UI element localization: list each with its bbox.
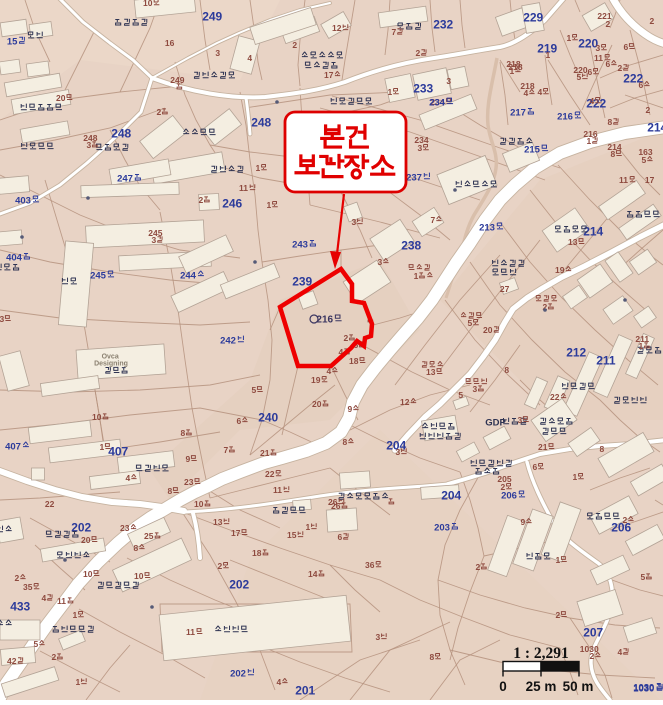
svg-text:5: 5 xyxy=(641,572,646,582)
svg-text:1: 1 xyxy=(267,200,272,210)
svg-text:2: 2 xyxy=(556,610,561,620)
svg-text:2: 2 xyxy=(157,107,162,117)
svg-text:25 m: 25 m xyxy=(526,679,557,694)
svg-text:3: 3 xyxy=(376,632,381,642)
svg-text:9: 9 xyxy=(186,454,191,464)
svg-text:217: 217 xyxy=(510,107,526,118)
svg-text:1: 1 xyxy=(546,50,551,60)
svg-text:4: 4 xyxy=(247,53,252,63)
svg-text:213: 213 xyxy=(479,222,495,233)
svg-text:3: 3 xyxy=(215,48,220,58)
svg-text:2: 2 xyxy=(416,48,421,58)
svg-text:8: 8 xyxy=(168,486,173,496)
svg-text:1: 1 xyxy=(100,442,105,452)
svg-text:3: 3 xyxy=(378,257,383,267)
svg-text:234: 234 xyxy=(429,97,446,108)
svg-text:9: 9 xyxy=(348,404,353,414)
svg-text:2: 2 xyxy=(199,195,204,205)
svg-text:7: 7 xyxy=(431,215,436,225)
svg-text:4: 4 xyxy=(618,647,623,657)
svg-text:5: 5 xyxy=(252,385,257,395)
svg-text:10: 10 xyxy=(92,412,102,422)
svg-text:5: 5 xyxy=(642,155,647,165)
svg-text:1: 1 xyxy=(76,677,81,687)
svg-text:3: 3 xyxy=(473,384,478,394)
svg-text:36: 36 xyxy=(365,560,375,570)
svg-text:17: 17 xyxy=(231,528,241,538)
svg-text:2: 2 xyxy=(15,573,20,583)
svg-text:6: 6 xyxy=(606,59,611,69)
svg-text:8: 8 xyxy=(611,149,616,159)
svg-text:20: 20 xyxy=(81,535,91,545)
svg-text:10: 10 xyxy=(194,499,204,509)
svg-text:3: 3 xyxy=(352,217,357,227)
svg-text:3: 3 xyxy=(446,76,451,86)
svg-text:6: 6 xyxy=(533,462,538,472)
svg-text:3: 3 xyxy=(0,314,5,324)
svg-text:35: 35 xyxy=(23,582,33,592)
svg-text:13: 13 xyxy=(568,237,578,247)
svg-text:2: 2 xyxy=(623,515,628,525)
svg-text:203: 203 xyxy=(434,522,450,533)
svg-text:206: 206 xyxy=(611,520,631,534)
svg-text:10: 10 xyxy=(134,571,144,581)
svg-text:212: 212 xyxy=(566,345,586,359)
svg-text:8: 8 xyxy=(608,117,613,127)
svg-text:2: 2 xyxy=(590,651,595,661)
svg-text:2: 2 xyxy=(52,652,57,662)
svg-text:4: 4 xyxy=(126,473,131,483)
svg-text:248: 248 xyxy=(251,115,271,129)
svg-text:2: 2 xyxy=(292,40,297,50)
svg-text:3: 3 xyxy=(87,140,92,150)
svg-text:233: 233 xyxy=(413,81,433,95)
svg-text:247: 247 xyxy=(117,173,133,184)
svg-text:7: 7 xyxy=(392,27,397,37)
svg-text:5: 5 xyxy=(468,318,473,328)
svg-text:1: 1 xyxy=(556,555,561,565)
svg-text:246: 246 xyxy=(222,196,242,210)
svg-text:1: 1 xyxy=(73,610,78,620)
svg-text:243: 243 xyxy=(292,239,308,250)
svg-text:Ovca: Ovca xyxy=(102,354,119,361)
svg-text:20: 20 xyxy=(483,325,493,335)
svg-text:2: 2 xyxy=(606,19,611,29)
svg-text:13: 13 xyxy=(426,367,436,377)
svg-text:4: 4 xyxy=(277,677,282,687)
svg-text:11: 11 xyxy=(619,175,628,185)
svg-text:2: 2 xyxy=(618,63,623,73)
svg-text:23: 23 xyxy=(184,477,194,487)
svg-text:6: 6 xyxy=(338,532,343,542)
svg-text:6: 6 xyxy=(639,80,644,90)
svg-text:22: 22 xyxy=(265,469,275,479)
svg-text:7: 7 xyxy=(224,445,229,455)
svg-text:50 m: 50 m xyxy=(563,679,594,694)
svg-text:18: 18 xyxy=(349,356,359,366)
svg-text:8: 8 xyxy=(134,543,139,553)
svg-text:207: 207 xyxy=(583,625,603,639)
svg-text:3: 3 xyxy=(396,447,401,457)
svg-text:4: 4 xyxy=(524,88,529,98)
svg-text:1: 1 xyxy=(306,522,311,532)
svg-text:21: 21 xyxy=(260,448,270,458)
svg-text:4: 4 xyxy=(42,593,47,603)
svg-text:215: 215 xyxy=(524,144,541,155)
svg-text:17: 17 xyxy=(324,70,334,80)
svg-text:237: 237 xyxy=(406,172,422,183)
svg-text:3: 3 xyxy=(518,415,523,425)
svg-text:8: 8 xyxy=(430,652,435,662)
svg-text:229: 229 xyxy=(523,10,543,24)
svg-text:8: 8 xyxy=(600,444,605,454)
svg-text:2: 2 xyxy=(646,105,651,115)
svg-text:1030: 1030 xyxy=(633,682,654,693)
svg-text:202: 202 xyxy=(230,668,246,679)
svg-text:3: 3 xyxy=(152,235,157,245)
svg-text:249: 249 xyxy=(202,9,222,23)
svg-text:42: 42 xyxy=(7,656,17,666)
svg-text:1: 1 xyxy=(587,136,592,146)
svg-text:1: 1 xyxy=(573,472,578,482)
svg-text:407: 407 xyxy=(5,441,21,452)
svg-text:22: 22 xyxy=(45,499,55,509)
svg-text:204: 204 xyxy=(441,488,461,502)
svg-text:2: 2 xyxy=(476,562,481,572)
svg-text:Designing: Designing xyxy=(94,361,128,368)
svg-text:214: 214 xyxy=(647,120,663,134)
svg-text:26: 26 xyxy=(331,501,341,511)
svg-text:240: 240 xyxy=(258,410,278,424)
svg-text:5: 5 xyxy=(577,72,582,82)
svg-text:216: 216 xyxy=(557,111,573,122)
svg-text:13: 13 xyxy=(213,517,223,527)
svg-text:238: 238 xyxy=(401,238,421,252)
svg-text:22: 22 xyxy=(550,392,560,402)
svg-text:1: 1 xyxy=(567,33,572,43)
svg-text:11: 11 xyxy=(239,183,248,193)
svg-text:21: 21 xyxy=(538,442,548,452)
svg-text:19: 19 xyxy=(311,375,321,385)
svg-text:25: 25 xyxy=(144,531,154,541)
svg-text:8: 8 xyxy=(343,437,348,447)
svg-text:17: 17 xyxy=(645,175,655,185)
svg-text:1: 1 xyxy=(414,271,419,281)
svg-text:20: 20 xyxy=(56,93,66,103)
svg-text:19: 19 xyxy=(555,265,565,275)
svg-text:11: 11 xyxy=(186,627,195,637)
svg-text:3: 3 xyxy=(596,43,601,53)
svg-text:14: 14 xyxy=(308,569,318,579)
svg-text:23: 23 xyxy=(120,523,130,533)
svg-text:201: 201 xyxy=(295,683,315,697)
svg-text:216: 216 xyxy=(316,315,333,326)
svg-text:8: 8 xyxy=(181,428,186,438)
svg-text:6: 6 xyxy=(237,416,242,426)
svg-text:2: 2 xyxy=(218,561,223,571)
svg-text:12: 12 xyxy=(332,23,342,33)
svg-text:10: 10 xyxy=(143,0,153,8)
svg-text:4: 4 xyxy=(538,87,543,97)
svg-text:232: 232 xyxy=(433,17,453,31)
svg-text:248: 248 xyxy=(111,126,131,140)
svg-text:0: 0 xyxy=(499,679,507,694)
svg-text:6: 6 xyxy=(624,42,629,52)
svg-text:433: 433 xyxy=(10,599,30,613)
svg-text:5: 5 xyxy=(34,639,39,649)
svg-text:8: 8 xyxy=(504,365,509,375)
svg-text:2: 2 xyxy=(344,333,349,343)
svg-text:1: 1 xyxy=(639,341,644,351)
svg-text:4: 4 xyxy=(590,96,595,106)
svg-text:5: 5 xyxy=(458,390,463,400)
svg-text:15: 15 xyxy=(287,530,297,540)
svg-text:9: 9 xyxy=(521,517,526,527)
svg-text:3: 3 xyxy=(418,143,423,153)
svg-text:403: 403 xyxy=(15,195,31,206)
svg-text:242: 242 xyxy=(220,335,236,346)
svg-text:20: 20 xyxy=(312,399,322,409)
svg-text:245: 245 xyxy=(90,270,107,281)
svg-text:10: 10 xyxy=(83,569,93,579)
svg-text:11: 11 xyxy=(273,485,282,495)
svg-text:211: 211 xyxy=(596,353,616,367)
svg-text:404: 404 xyxy=(6,252,23,263)
svg-text:202: 202 xyxy=(229,577,249,591)
svg-text:1 : 2,291: 1 : 2,291 xyxy=(513,645,569,662)
svg-text:16: 16 xyxy=(165,38,175,48)
svg-text:6: 6 xyxy=(588,67,593,77)
svg-text:27: 27 xyxy=(500,284,510,294)
svg-text:2: 2 xyxy=(650,16,655,26)
svg-text:1: 1 xyxy=(256,163,261,173)
svg-text:244: 244 xyxy=(180,270,197,281)
svg-text:1: 1 xyxy=(388,87,393,97)
svg-text:12: 12 xyxy=(400,397,410,407)
svg-text:218: 218 xyxy=(508,62,522,72)
svg-text:407: 407 xyxy=(108,444,128,458)
svg-text:15: 15 xyxy=(7,36,18,47)
svg-text:18: 18 xyxy=(252,548,262,558)
svg-text:11: 11 xyxy=(57,596,66,606)
svg-text:2: 2 xyxy=(501,482,506,492)
svg-text:11: 11 xyxy=(594,53,603,63)
